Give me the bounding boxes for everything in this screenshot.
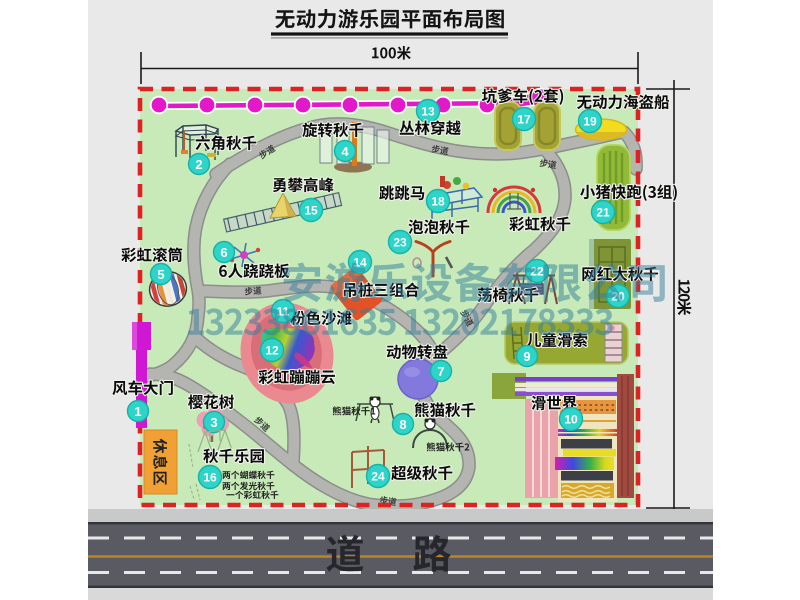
svg-text:19: 19 [583, 114, 597, 128]
svg-text:9: 9 [523, 349, 530, 364]
svg-text:15: 15 [304, 203, 318, 217]
svg-text:13: 13 [421, 104, 435, 118]
svg-text:18: 18 [431, 194, 445, 208]
svg-text:21: 21 [596, 205, 610, 219]
svg-text:16: 16 [203, 470, 217, 484]
svg-text:10: 10 [564, 412, 578, 426]
svg-text:12: 12 [265, 343, 279, 357]
svg-text:5: 5 [157, 267, 164, 282]
svg-text:8: 8 [399, 417, 406, 432]
svg-text:17: 17 [517, 112, 531, 126]
svg-text:4: 4 [341, 144, 349, 159]
svg-text:6: 6 [220, 245, 227, 260]
svg-text:23: 23 [393, 235, 407, 249]
svg-text:1: 1 [134, 404, 141, 419]
svg-text:2: 2 [195, 157, 202, 172]
svg-text:7: 7 [437, 364, 444, 379]
svg-text:3: 3 [210, 415, 217, 430]
svg-text:24: 24 [371, 469, 385, 483]
